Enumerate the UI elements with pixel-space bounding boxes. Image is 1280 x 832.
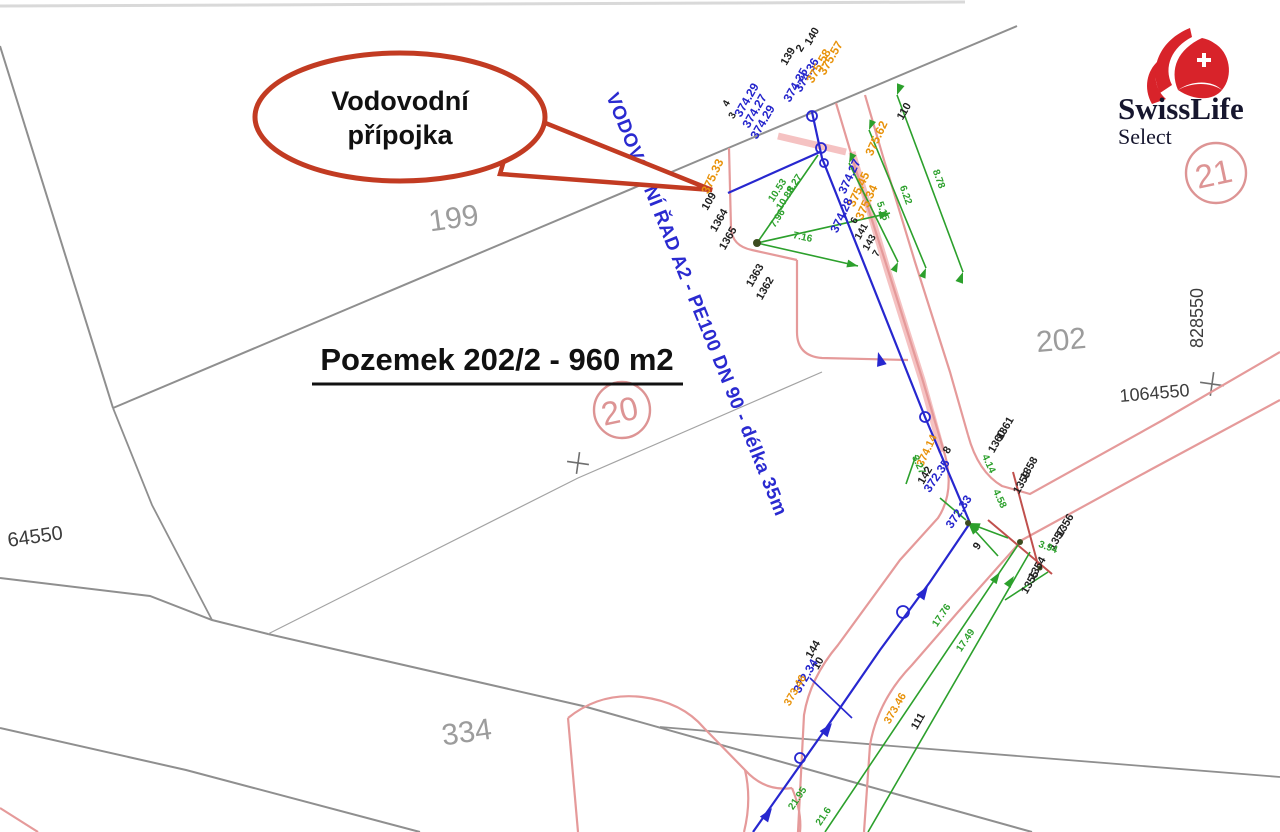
map-label: 828550 (1187, 288, 1207, 348)
swisslife-logo: SwissLife Select (1118, 28, 1244, 149)
map-label: 7.16 (792, 230, 814, 245)
map-label: 111 (909, 711, 928, 732)
map-label: 4 (721, 98, 734, 109)
pipe-flow-arrows (760, 351, 932, 823)
balloon-line2: přípojka (347, 120, 453, 150)
map-label: 334 (440, 713, 494, 753)
dimension-lines (757, 95, 1048, 832)
map-label: 373.46 (882, 691, 909, 726)
map-label: 8.78 (930, 168, 947, 190)
swisslife-sub-text: Select (1118, 124, 1172, 149)
swisslife-brand-text: SwissLife (1118, 91, 1244, 126)
map-label: 4.14 (979, 453, 997, 476)
cadastral-map-page: VODOVODNÍ ŘAD A2 - PE100 DN 90 - délka 3… (0, 0, 1280, 832)
map-label: 144 (804, 638, 824, 661)
map-label: 8 (941, 444, 954, 456)
map-label: 1359 (1011, 469, 1034, 496)
svg-text:Pozemek 202/2 - 960 m2: Pozemek 202/2 - 960 m2 (320, 342, 673, 377)
pipe-route-label: VODOVODNÍ ŘAD A2 - PE100 DN 90 - délka 3… (601, 90, 792, 519)
map-label: 21.6 (814, 805, 834, 828)
map-label: 202 (1035, 322, 1088, 359)
map-label: 140 (803, 26, 823, 48)
map-label: 375.62 (862, 118, 890, 157)
map-label: 17.76 (930, 602, 953, 629)
page-title: Pozemek 202/2 - 960 m2 (312, 342, 683, 384)
map-label: 20 (598, 389, 642, 433)
map-label: 8.27 (785, 172, 805, 195)
map-label: 9 (971, 540, 984, 552)
map-label: 110 (895, 101, 914, 122)
survey-drawing: VODOVODNÍ ŘAD A2 - PE100 DN 90 - délka 3… (0, 0, 1280, 832)
page-edge-line (0, 2, 965, 6)
dimension-arrowheads (846, 83, 1017, 588)
annotation-labels: 1402139374.35374.36375.58375.5743374.293… (6, 26, 1235, 828)
map-label: 4.58 (990, 488, 1008, 511)
map-label: 1355 (1019, 569, 1042, 596)
balloon-line1: Vodovodní (331, 86, 470, 116)
map-label: 375.33 (698, 156, 726, 195)
map-label: 109 (700, 191, 720, 213)
map-label: 1360 (986, 428, 1009, 455)
callout-balloon: Vodovodní přípojka (255, 53, 712, 190)
map-label: 64550 (6, 522, 64, 552)
map-label: 199 (427, 199, 481, 239)
map-label: 21 (1192, 152, 1236, 196)
map-label: 1064550 (1119, 380, 1191, 406)
map-label: 7.96 (768, 207, 788, 230)
